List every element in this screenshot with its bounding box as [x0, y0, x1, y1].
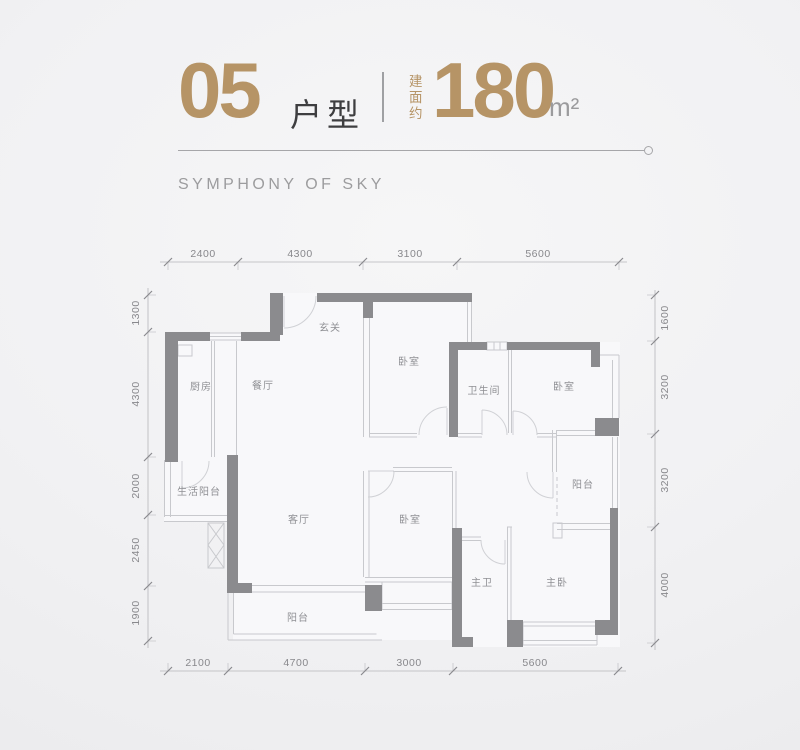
- dim-bottom-4: 5600: [522, 657, 547, 669]
- room-label-utility-balcony: 生活阳台: [177, 485, 221, 498]
- floorplan-card: 05 户型 建面约 180 m² SYMPHONY OF SKY: [0, 0, 800, 750]
- dim-right-4: 4000: [659, 572, 671, 597]
- dim-left-1: 1300: [130, 300, 142, 325]
- dim-left-4: 2450: [130, 537, 142, 562]
- dim-top-2: 4300: [287, 248, 312, 260]
- dim-left-3: 2000: [130, 473, 142, 498]
- room-label-entry: 玄关: [319, 321, 341, 334]
- dim-top-1: 2400: [190, 248, 215, 260]
- dim-bottom-3: 3000: [396, 657, 421, 669]
- room-label-balcony-right: 阳台: [572, 478, 594, 491]
- room-label-balcony-bottom: 阳台: [287, 611, 309, 624]
- room-label-living: 客厅: [288, 513, 310, 526]
- room-label-master-bedroom: 主卧: [546, 576, 568, 589]
- room-label-master-bath: 主卫: [471, 577, 493, 589]
- dim-right-1: 1600: [659, 305, 671, 330]
- room-label-bedroom-mid: 卧室: [399, 513, 421, 526]
- room-label-kitchen: 厨房: [190, 380, 212, 393]
- dim-left-2: 4300: [130, 381, 142, 406]
- room-label-bedroom-right: 卧室: [553, 380, 575, 393]
- dim-bottom-2: 4700: [283, 657, 308, 669]
- dim-top-3: 3100: [397, 248, 422, 260]
- dim-right-2: 3200: [659, 374, 671, 399]
- room-label-dining: 餐厅: [252, 379, 274, 392]
- dim-left-5: 1900: [130, 600, 142, 625]
- dim-bottom-1: 2100: [185, 657, 210, 669]
- room-label-bedroom-top: 卧室: [398, 355, 420, 368]
- room-label-bathroom: 卫生间: [468, 384, 501, 397]
- floorplan-svg: 2400 4300 3100 5600 2100 4700 3000 5600 …: [0, 0, 800, 750]
- dim-right-3: 3200: [659, 467, 671, 492]
- dim-top-4: 5600: [525, 248, 550, 260]
